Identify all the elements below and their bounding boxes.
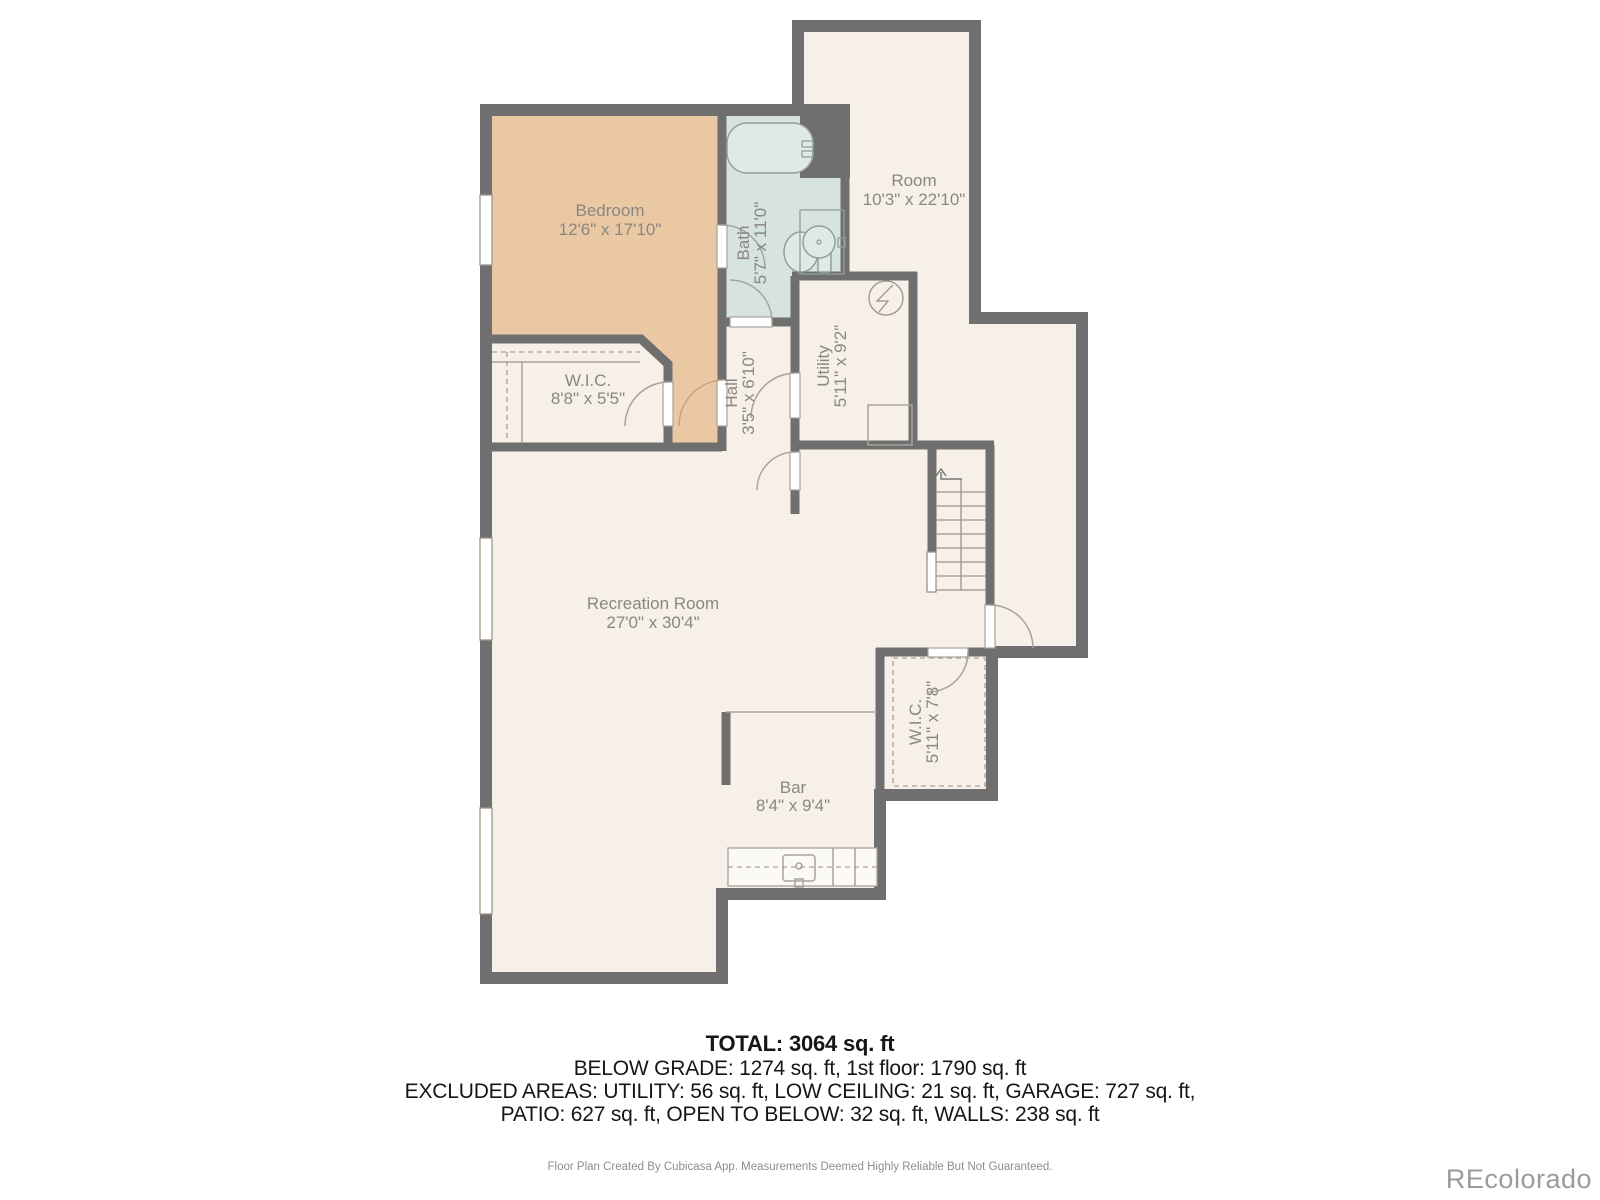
room-label-bar: Bar [780,778,807,797]
bar-counter [728,848,877,887]
watermark-recolorado: REcolorado [1446,1164,1592,1195]
room-label-bedroom: Bedroom [576,201,645,220]
bathtub [727,123,813,173]
summary-below-grade: BELOW GRADE: 1274 sq. ft, 1st floor: 179… [0,1057,1600,1080]
room-dims-room: 10'3" x 22'10" [863,190,966,209]
summary-excluded-areas-2: PATIO: 627 sq. ft, OPEN TO BELOW: 32 sq.… [0,1103,1600,1126]
door-leaf [790,452,800,490]
window [480,538,492,640]
door-leaf [790,373,800,418]
stair-landing-jamb [927,552,936,592]
door-leaf [985,605,995,648]
floor-plan-page: Bedroom 12'6" x 17'10" Bath 5'7" x 11'0"… [0,0,1600,1200]
room-dims-bar: 8'4" x 9'4" [756,796,830,815]
summary-total: TOTAL: 3064 sq. ft [0,1031,1600,1057]
summary-excluded-areas: EXCLUDED AREAS: UTILITY: 56 sq. ft, LOW … [0,1080,1600,1103]
room-dims-utility: 5'11" x 9'2" [831,325,850,408]
window [480,808,492,914]
room-label-wic-upper: W.I.C. [565,371,611,390]
room-dims-wic-upper: 8'8" x 5'5" [551,389,625,408]
floor-plan: Bedroom 12'6" x 17'10" Bath 5'7" x 11'0"… [0,0,1600,1200]
window [480,195,492,265]
door-leaf [717,225,727,268]
door-leaf [928,648,968,657]
area-summary: TOTAL: 3064 sq. ft BELOW GRADE: 1274 sq.… [0,1031,1600,1126]
door-leaf [663,382,673,426]
door-leaf [730,317,772,327]
room-dims-bath: 5'7" x 11'0" [751,202,770,285]
room-dims-recreation: 27'0" x 30'4" [606,613,699,632]
room-dims-hall: 3'5" x 6'10" [739,351,758,435]
room-dims-wic-lower: 5'11" x 7'8" [923,681,942,764]
room-label-recreation: Recreation Room [587,594,719,613]
room-label-room: Room [891,171,936,190]
room-dims-bedroom: 12'6" x 17'10" [559,220,662,239]
disclaimer-text: Floor Plan Created By Cubicasa App. Meas… [0,1161,1600,1173]
